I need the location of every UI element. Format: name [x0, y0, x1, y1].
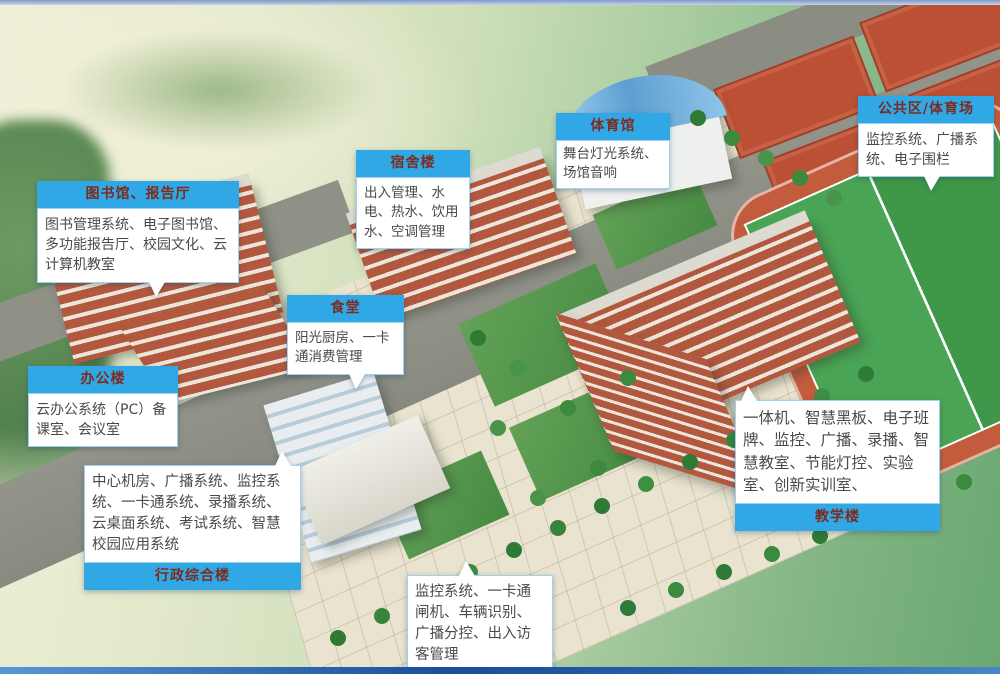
- callout-body: 一体机、智慧黑板、电子班牌、监控、广播、录播、智慧教室、节能灯控、实验室、创新实…: [735, 400, 940, 504]
- callout-title: 体育馆: [556, 113, 670, 140]
- slide-top-border: [0, 0, 1000, 5]
- callout-title: 教学楼: [735, 504, 940, 531]
- callout-body: 图书管理系统、电子图书馆、多功能报告厅、校园文化、云计算机教室: [37, 208, 239, 283]
- tree-belt: [60, 30, 380, 150]
- tree-row: [620, 600, 636, 616]
- callout-pointer: [924, 176, 940, 191]
- callout-title: 行政综合楼: [84, 563, 301, 590]
- callout-pointer: [741, 386, 757, 401]
- tree-row: [690, 110, 706, 126]
- callout-body: 中心机房、广播系统、监控系统、一卡通系统、录播系统、云桌面系统、考试系统、智慧校…: [84, 465, 301, 563]
- callout-body: 云办公系统（PC）备课室、会议室: [28, 393, 178, 448]
- callout-title: 宿舍楼: [356, 150, 470, 177]
- callout-body: 监控系统、一卡通闸机、车辆识别、广播分控、出入访客管理: [407, 575, 553, 673]
- callout-pointer: [459, 561, 475, 576]
- callout-title: 食堂: [287, 295, 404, 322]
- callout-canteen: 食堂 阳光厨房、一卡通消费管理: [287, 295, 404, 375]
- callout-body: 监控系统、广播系统、电子围栏: [858, 123, 994, 178]
- callout-gate: 监控系统、一卡通闸机、车辆识别、广播分控、出入访客管理 校门口、门卫: [407, 575, 553, 674]
- campus-systems-diagram: 图书馆、报告厅 图书管理系统、电子图书馆、多功能报告厅、校园文化、云计算机教室 …: [0, 0, 1000, 674]
- callout-title: 图书馆、报告厅: [37, 181, 239, 208]
- tree-row: [330, 630, 346, 646]
- callout-title: 办公楼: [28, 366, 178, 393]
- callout-teaching-building: 一体机、智慧黑板、电子班牌、监控、广播、录播、智慧教室、节能灯控、实验室、创新实…: [735, 400, 940, 531]
- callout-body: 阳光厨房、一卡通消费管理: [287, 322, 404, 375]
- slide-bottom-border: [0, 667, 1000, 674]
- callout-dormitory: 宿舍楼 出入管理、水电、热水、饮用水、空调管理: [356, 150, 470, 249]
- callout-library: 图书馆、报告厅 图书管理系统、电子图书馆、多功能报告厅、校园文化、云计算机教室: [37, 181, 239, 283]
- plaza-trees: [470, 330, 486, 346]
- callout-office: 办公楼 云办公系统（PC）备课室、会议室: [28, 366, 178, 447]
- callout-gymnasium: 体育馆 舞台灯光系统、场馆音响: [556, 113, 670, 189]
- callout-pointer: [149, 282, 165, 297]
- callout-public-area: 公共区/体育场 监控系统、广播系统、电子围栏: [858, 96, 994, 177]
- callout-body: 出入管理、水电、热水、饮用水、空调管理: [356, 177, 470, 250]
- callout-pointer: [349, 374, 365, 389]
- callout-body: 舞台灯光系统、场馆音响: [556, 140, 670, 189]
- callout-title: 公共区/体育场: [858, 96, 994, 123]
- callout-pointer: [275, 451, 291, 466]
- callout-admin-building: 中心机房、广播系统、监控系统、一卡通系统、录播系统、云桌面系统、考试系统、智慧校…: [84, 465, 301, 590]
